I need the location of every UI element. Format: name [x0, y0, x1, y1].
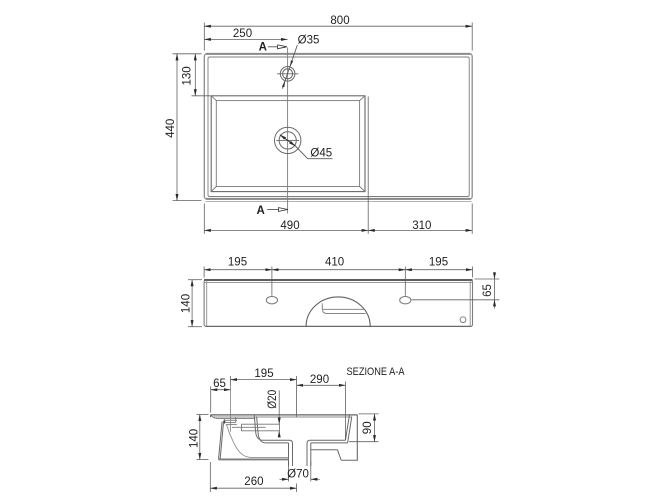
svg-text:65: 65 [482, 284, 494, 297]
svg-text:310: 310 [412, 220, 431, 232]
svg-text:Ø20: Ø20 [267, 390, 279, 409]
svg-text:140: 140 [188, 429, 200, 448]
svg-text:260: 260 [244, 476, 263, 488]
svg-text:440: 440 [165, 119, 177, 138]
svg-text:195: 195 [228, 257, 247, 269]
svg-text:195: 195 [429, 257, 448, 269]
svg-text:90: 90 [362, 421, 374, 434]
svg-text:140: 140 [180, 294, 192, 313]
svg-text:250: 250 [233, 28, 252, 40]
svg-text:A: A [256, 205, 264, 217]
svg-text:410: 410 [325, 257, 344, 269]
svg-text:195: 195 [254, 368, 273, 380]
svg-text:65: 65 [213, 378, 226, 390]
svg-text:SEZIONE A-A: SEZIONE A-A [347, 366, 406, 378]
svg-text:Ø35: Ø35 [298, 35, 320, 47]
svg-text:290: 290 [310, 374, 329, 386]
svg-text:Ø45: Ø45 [310, 147, 332, 159]
svg-text:A: A [259, 41, 267, 53]
svg-text:800: 800 [330, 15, 349, 27]
svg-text:490: 490 [280, 220, 299, 232]
svg-text:Ø70: Ø70 [287, 468, 309, 480]
svg-text:130: 130 [182, 66, 194, 85]
